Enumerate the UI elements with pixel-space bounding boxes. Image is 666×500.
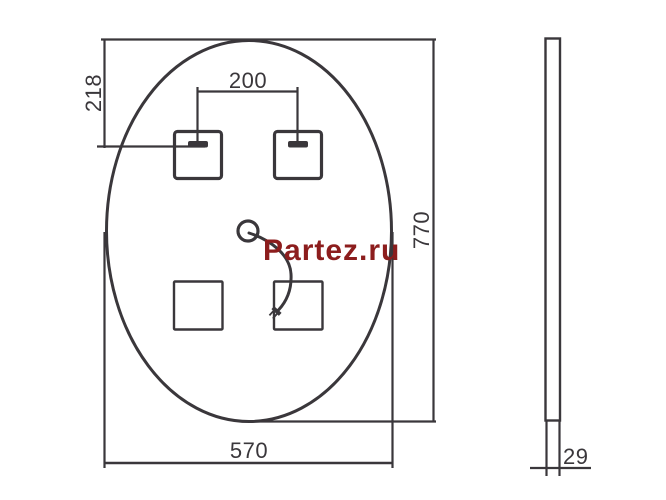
dim-label-mount-spacing: 200 [229, 68, 267, 93]
watermark-logo: Partez.ru [263, 234, 400, 267]
dim-label-width: 570 [230, 438, 268, 463]
mirror-dimension-diagram: 218 200 770 570 29 Partez.ru [0, 0, 666, 500]
dim-label-height: 770 [409, 211, 434, 249]
mirror-oval-outline [107, 41, 392, 422]
dim-label-thickness: 29 [563, 444, 588, 469]
front-view [107, 41, 392, 422]
side-view-panel [546, 39, 561, 421]
junction-box-bottom-left [174, 282, 223, 330]
dim-label-mount-offset: 218 [81, 74, 106, 112]
technical-drawing-canvas: 218 200 770 570 29 Partez.ru [0, 0, 666, 500]
dimension-labels: 218 200 770 570 29 [81, 68, 588, 469]
sensor-circle [238, 221, 258, 241]
